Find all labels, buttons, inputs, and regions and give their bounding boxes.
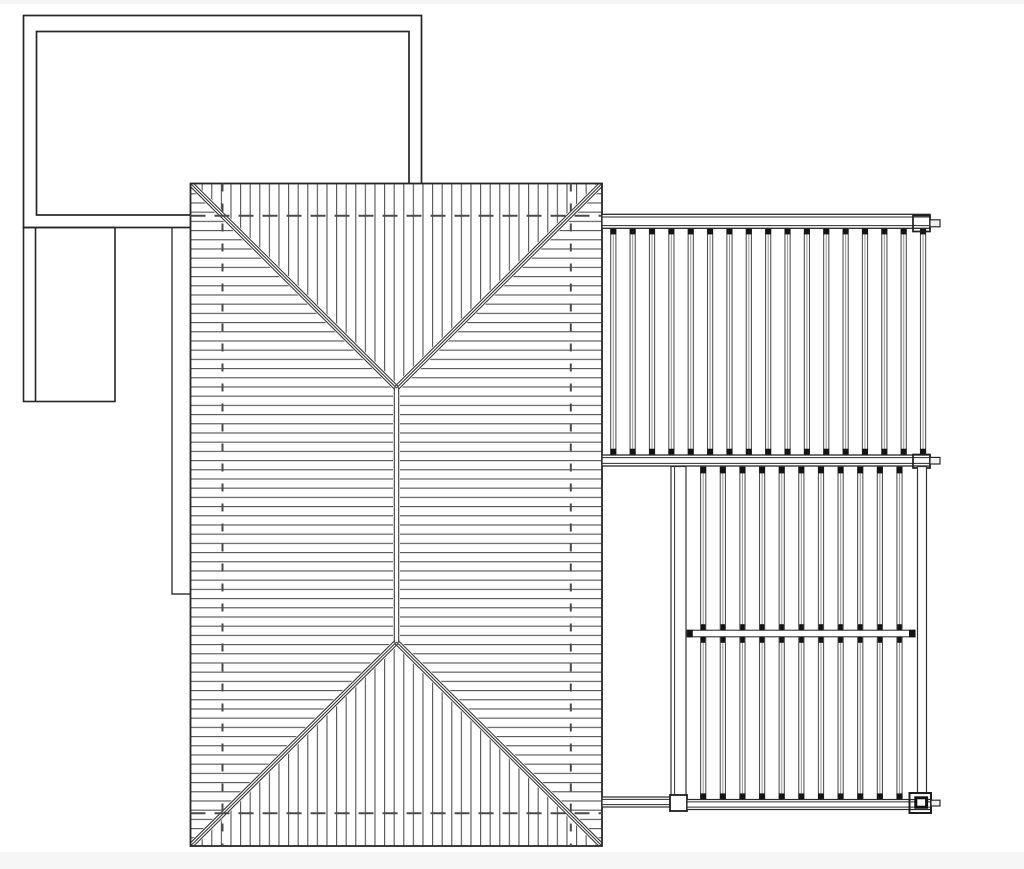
slat-tip-bottom (823, 449, 829, 456)
slat-tip-bottom (881, 449, 887, 456)
rail-mark-below (721, 637, 725, 643)
upper-beam-end-pin-top (930, 220, 940, 227)
rail-mark-below (897, 637, 901, 643)
slat-tip-top (740, 467, 746, 474)
slat-tip-top (798, 467, 804, 474)
slat-tip-bottom (707, 449, 713, 456)
rail-mark-above (760, 624, 764, 630)
slat-tip-bottom (649, 449, 655, 456)
rail-mark-below (780, 637, 784, 643)
roof-plan-page (0, 0, 1024, 869)
rail-mark-above (740, 624, 744, 630)
slat-tip-bottom (901, 449, 907, 456)
rail-mark-above (897, 624, 901, 630)
rail-mark-above (858, 624, 862, 630)
rail-mark-below (819, 637, 823, 643)
footer-strip (0, 852, 1024, 869)
rail-mark-above (701, 624, 705, 630)
slat-tip-bottom (862, 449, 868, 456)
slat-tip-bottom (668, 449, 674, 456)
rail-mark-below (858, 637, 862, 643)
slat-tip-top (720, 467, 726, 474)
slat-tip-bottom (765, 449, 771, 456)
rail-mark-above (819, 624, 823, 630)
slat-tip-bottom (785, 449, 791, 456)
slat-tip-top (857, 467, 863, 474)
rail-mark-below (838, 637, 842, 643)
slat-tip-bottom (843, 449, 849, 456)
slat-tip-top (779, 467, 785, 474)
rail-mark-below (760, 637, 764, 643)
bottom-beam-post (670, 795, 687, 811)
rail-mark-below (878, 637, 882, 643)
slat-tip-top (818, 467, 824, 474)
slat-tip-bottom (746, 449, 752, 456)
top-strip (0, 0, 1024, 4)
roof-plan-drawing (0, 0, 1024, 869)
slat-tip-bottom (610, 449, 616, 456)
mid-rail-right-tip (909, 630, 916, 638)
bottom-beam-end-inner-square (916, 798, 927, 807)
slat-tip-top (897, 467, 903, 474)
slat-tip-bottom (688, 449, 694, 456)
upper-pergola-bottom-beam (602, 455, 930, 466)
lower-pergola-east-beam (918, 467, 927, 794)
rail-mark-below (701, 637, 705, 643)
upper-beam-end-pin-bottom (930, 457, 940, 464)
slat-tip-bottom (727, 449, 733, 456)
rail-mark-above (721, 624, 725, 630)
lower-pergola-mid-rail (687, 630, 916, 638)
slat-tip-top (877, 467, 883, 474)
slat-tip-top (700, 467, 706, 474)
rail-mark-above (799, 624, 803, 630)
upper-pergola-top-beam (602, 214, 930, 228)
rail-mark-above (780, 624, 784, 630)
slat-tip-bottom (630, 449, 636, 456)
lower-pergola-west-beam (671, 467, 686, 796)
slat-tip-top (838, 467, 844, 474)
slat-tip-bottom (804, 449, 810, 456)
hip-roof (189, 182, 604, 848)
bottom-beam-end-pin (931, 800, 940, 806)
rail-mark-above (878, 624, 882, 630)
mid-rail-left-tip (687, 630, 693, 638)
rail-mark-below (799, 637, 803, 643)
rail-mark-below (740, 637, 744, 643)
slat-tip-top (759, 467, 765, 474)
rail-mark-above (838, 624, 842, 630)
